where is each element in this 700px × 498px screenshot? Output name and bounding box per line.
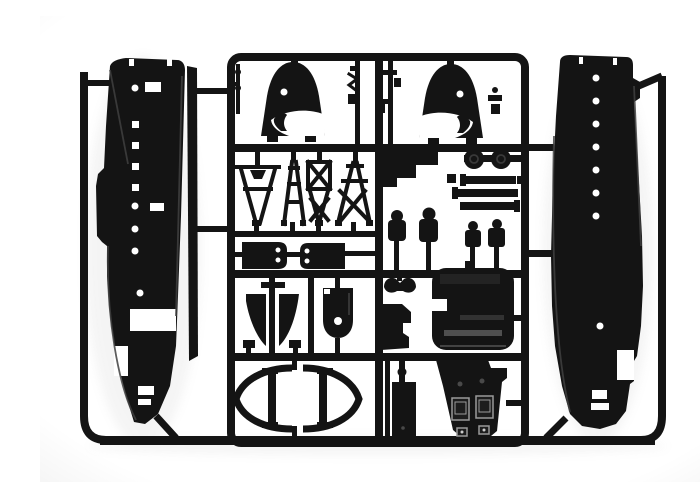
sprue-photo: Sprue runner frame bbox=[40, 16, 700, 482]
vignette-overlay bbox=[40, 16, 700, 482]
sprue-illustration: Sprue runner frame bbox=[40, 16, 700, 482]
